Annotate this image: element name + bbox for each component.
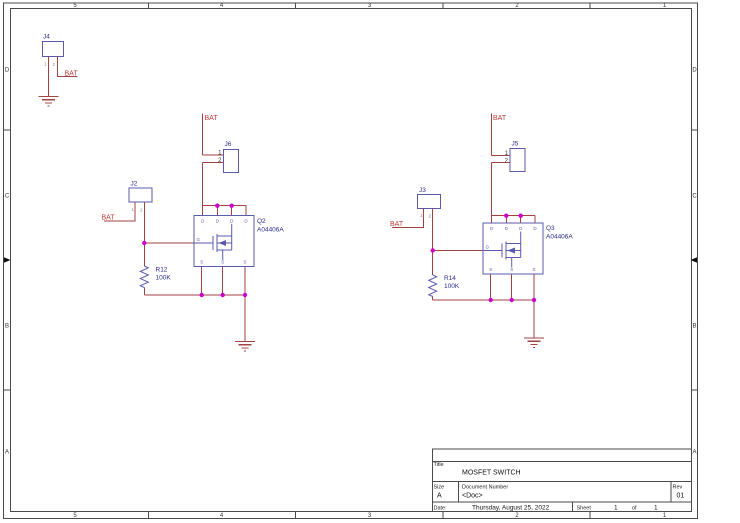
sheet-total: 1 bbox=[654, 505, 658, 512]
connector-j2[interactable]: J2 1 2 bbox=[129, 181, 152, 213]
rev-label: Rev bbox=[673, 485, 683, 491]
junction-dot bbox=[431, 248, 435, 252]
refdes-q3[interactable]: Q3 bbox=[546, 225, 555, 232]
grid-row-label: D bbox=[692, 68, 697, 74]
wire-j2-gate[interactable] bbox=[144, 202, 194, 266]
j6-pin2-number: 2 bbox=[218, 158, 222, 164]
doc-number-label: Document Number bbox=[462, 485, 508, 491]
q2-pin-d: D bbox=[230, 219, 234, 224]
size-label: Size bbox=[434, 485, 445, 491]
q2-pin-s: S bbox=[221, 260, 224, 265]
j2-pin1-number: 1 bbox=[132, 207, 135, 212]
q2-pin-s: S bbox=[200, 260, 203, 265]
schematic-page: 5 4 3 2 1 5 4 3 2 1 D C B A D C B A J4 1… bbox=[0, 0, 740, 523]
refdes-r12[interactable]: R12 bbox=[156, 267, 168, 274]
q3-pin-d: D bbox=[505, 226, 509, 231]
grid-row-label: A bbox=[5, 450, 9, 456]
refdes-q2[interactable]: Q2 bbox=[257, 218, 266, 225]
wire-j6-q2drain[interactable] bbox=[203, 162, 246, 215]
connector-j5[interactable]: J5 1 2 bbox=[505, 141, 525, 172]
ground-symbol-q2[interactable] bbox=[235, 342, 255, 352]
q3-pin-d: D bbox=[533, 226, 537, 231]
q2-mosfet-symbol bbox=[194, 224, 232, 260]
q3-pin-d: D bbox=[519, 226, 523, 231]
j2-pin2-number: 2 bbox=[140, 208, 143, 213]
connector-j4[interactable]: J4 1 2 bbox=[43, 34, 64, 68]
date-label: Date: bbox=[434, 506, 448, 512]
j6-pin1-number: 1 bbox=[218, 151, 222, 157]
rev-value: 01 bbox=[677, 493, 685, 500]
junction-dot bbox=[142, 241, 146, 245]
page-border bbox=[4, 3, 698, 519]
ground-symbol-q3[interactable] bbox=[524, 338, 544, 348]
grid-row-label: C bbox=[5, 194, 10, 200]
q2-pin-s: S bbox=[243, 260, 246, 265]
junction-dot bbox=[532, 298, 536, 302]
q3-pin-s: S bbox=[532, 267, 535, 272]
refdes-j2[interactable]: J2 bbox=[131, 181, 138, 188]
ground-symbol-j4[interactable] bbox=[39, 97, 59, 107]
center-arrow-left bbox=[4, 257, 11, 262]
refdes-r14[interactable]: R14 bbox=[444, 275, 456, 282]
sheet-number: 1 bbox=[614, 505, 618, 512]
q3-pin-d: D bbox=[490, 226, 494, 231]
q3-pin-s: S bbox=[510, 267, 513, 272]
junction-dot bbox=[519, 214, 523, 218]
grid-row-label: D bbox=[5, 68, 10, 74]
net-label-bat[interactable]: BAT bbox=[65, 71, 79, 78]
value-q2[interactable]: A04406A bbox=[257, 227, 284, 234]
net-label-bat[interactable]: BAT bbox=[390, 221, 404, 228]
net-label-bat[interactable]: BAT bbox=[102, 215, 116, 222]
j4-pin2-number: 2 bbox=[53, 62, 56, 67]
value-q3[interactable]: A04406A bbox=[546, 234, 573, 241]
resistor-r12[interactable]: R12 100K bbox=[140, 266, 171, 287]
connector-j6[interactable]: J6 1 2 bbox=[218, 141, 238, 173]
mosfet-q2[interactable]: Q2 A04406A D D D D S S S G bbox=[194, 216, 284, 267]
sheet-label: Sheet bbox=[577, 506, 592, 512]
refdes-j3[interactable]: J3 bbox=[419, 187, 426, 194]
junction-dot bbox=[504, 214, 508, 218]
j5-pin2-number: 2 bbox=[505, 158, 509, 164]
junction-dot bbox=[200, 293, 204, 297]
title-label: Title bbox=[434, 462, 444, 468]
refdes-j6[interactable]: J6 bbox=[225, 141, 232, 148]
junction-dot bbox=[221, 293, 225, 297]
connector-j3[interactable]: J3 1 2 bbox=[418, 187, 441, 219]
grid-row-label: B bbox=[692, 324, 696, 330]
value-r14[interactable]: 100K bbox=[444, 283, 460, 290]
j3-pin2-number: 2 bbox=[429, 214, 432, 219]
q3-pin-g: G bbox=[486, 245, 490, 250]
grid-labels: 5 4 3 2 1 5 4 3 2 1 D C B A D C B A bbox=[5, 3, 698, 519]
junction-dot bbox=[230, 204, 234, 208]
grid-row-label: A bbox=[692, 450, 696, 456]
q2-pin-d: D bbox=[244, 219, 248, 224]
j4-pin1-number: 1 bbox=[44, 62, 47, 67]
q2-pin-d: D bbox=[201, 219, 205, 224]
q2-pin-d: D bbox=[216, 219, 220, 224]
mosfet-q3[interactable]: Q3 A04406A D D D D S S S G bbox=[483, 223, 573, 274]
junction-dot bbox=[489, 298, 493, 302]
junction-dot bbox=[510, 298, 514, 302]
q3-pin-s: S bbox=[489, 267, 492, 272]
q3-mosfet-symbol bbox=[483, 232, 521, 268]
net-label-bat[interactable]: BAT bbox=[205, 115, 219, 122]
size-value: A bbox=[437, 493, 442, 500]
wire-j3-gate[interactable] bbox=[433, 208, 483, 275]
net-label-bat[interactable]: BAT bbox=[493, 115, 507, 122]
j3-pin1-number: 1 bbox=[420, 213, 423, 218]
junction-dot bbox=[243, 293, 247, 297]
doc-number-value[interactable]: <Doc> bbox=[462, 493, 483, 500]
grid-row-label: C bbox=[692, 194, 697, 200]
refdes-j4[interactable]: J4 bbox=[43, 34, 50, 41]
resistor-r14[interactable]: R14 100K bbox=[429, 275, 460, 296]
q2-pin-g: G bbox=[197, 237, 201, 242]
of-label: of bbox=[632, 506, 637, 512]
refdes-j5[interactable]: J5 bbox=[512, 141, 519, 148]
grid-row-label: B bbox=[5, 324, 9, 330]
sheet-title[interactable]: MOSFET SWITCH bbox=[462, 470, 521, 477]
value-r12[interactable]: 100K bbox=[156, 275, 172, 282]
junction-dot bbox=[215, 204, 219, 208]
title-block: Title MOSFET SWITCH Size A Document Numb… bbox=[433, 449, 692, 512]
date-value: Thursday, August 25, 2022 bbox=[472, 505, 550, 512]
